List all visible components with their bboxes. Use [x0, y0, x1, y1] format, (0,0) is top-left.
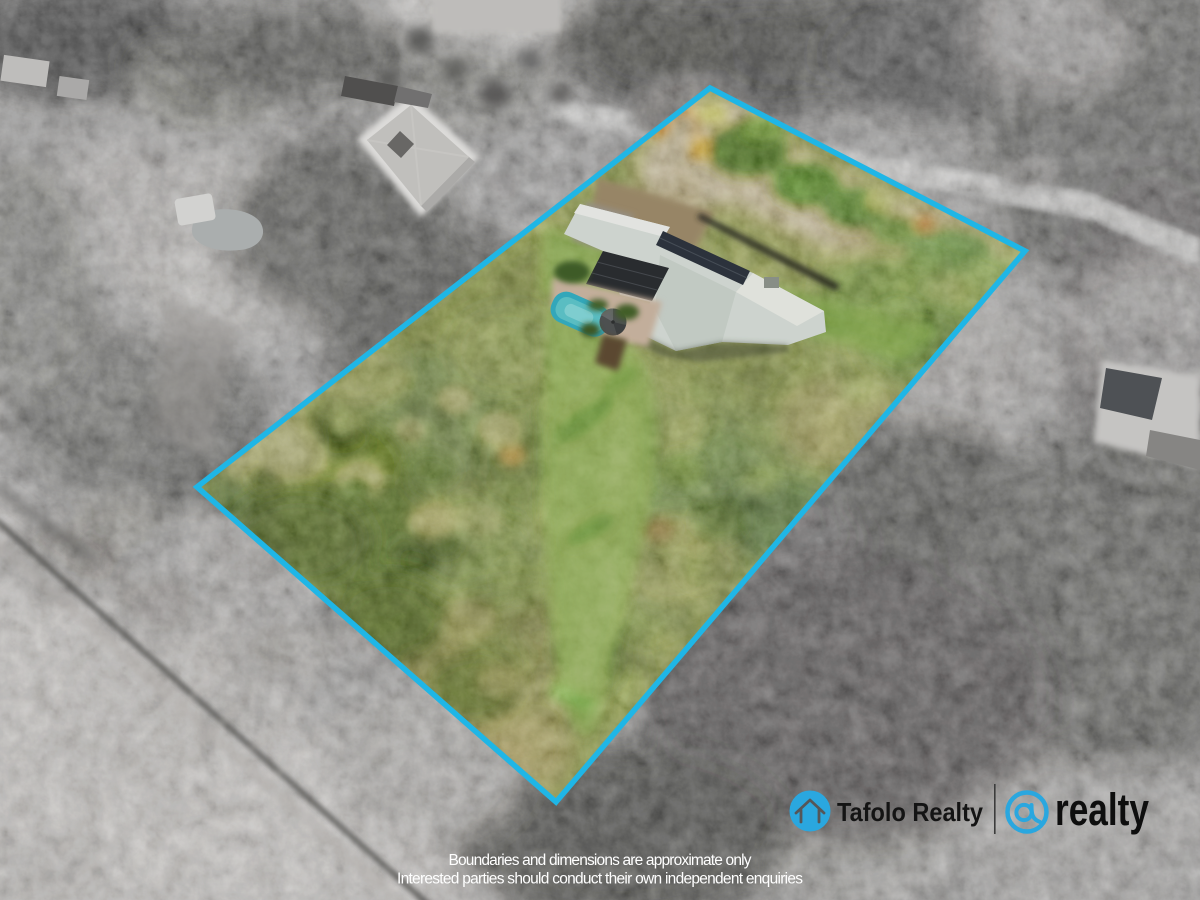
svg-text:Interested parties should cond: Interested parties should conduct their … — [397, 871, 803, 888]
svg-text:realty: realty — [1055, 784, 1149, 835]
svg-text:Tafolo Realty: Tafolo Realty — [837, 797, 983, 827]
svg-text:Boundaries and dimensions are: Boundaries and dimensions are approximat… — [449, 852, 752, 869]
